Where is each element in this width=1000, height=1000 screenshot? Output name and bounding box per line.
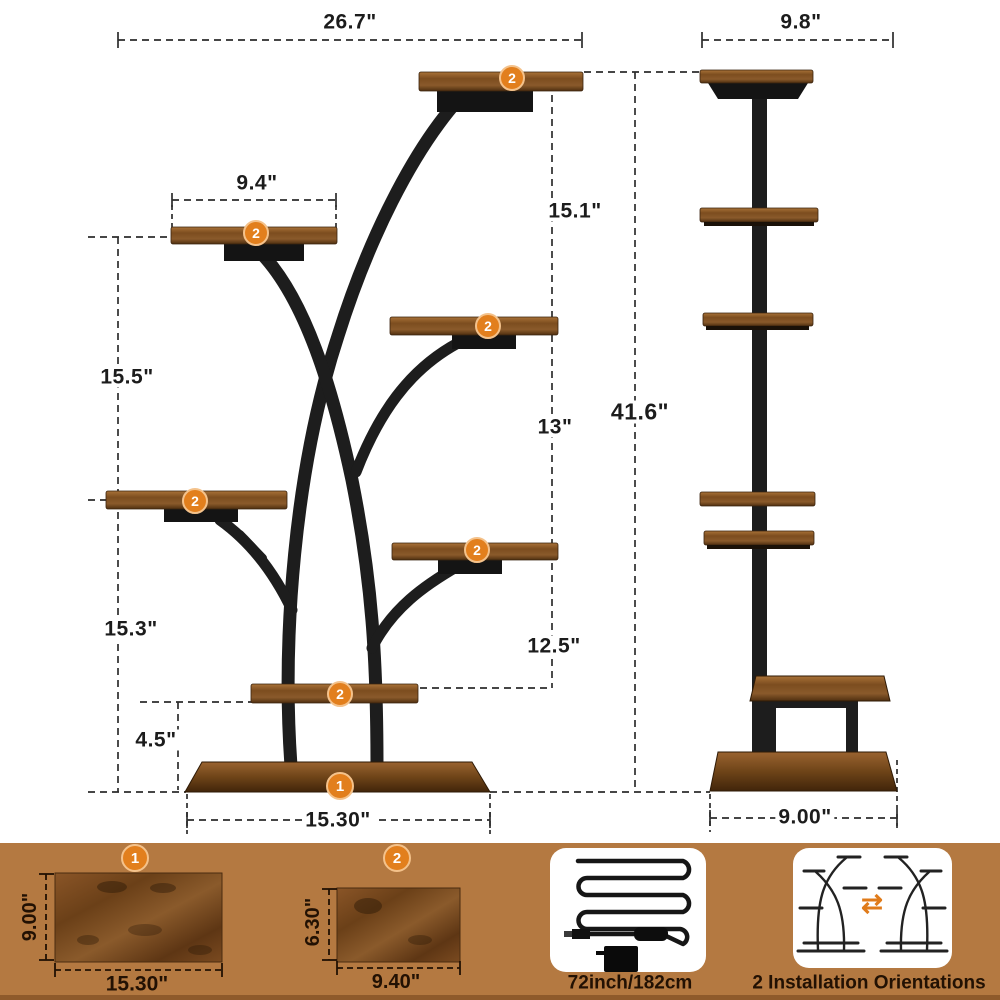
shelf-badge: 2: [327, 681, 353, 707]
legend-board-small-badge: 2: [383, 844, 411, 872]
legend-board-large-height: 9.00": [20, 893, 40, 941]
legend-board-small-graphic: [337, 888, 460, 962]
orientations-label: 2 Installation Orientations: [752, 974, 985, 993]
dim-front-right-upper: 15.1": [545, 201, 604, 222]
dim-front-left-upper: 15.5": [97, 367, 156, 388]
shelf-badge: 2: [499, 65, 525, 91]
legend-board-large-width: 15.30": [106, 974, 169, 995]
dim-front-right-mid: 13": [535, 417, 576, 438]
side-view-dimension-lines: [702, 32, 897, 832]
legend-board-small-width: 9.40": [372, 972, 420, 992]
power-cable-icon: [550, 848, 706, 972]
shelf-badge: 2: [182, 488, 208, 514]
dim-front-right-lower: 12.5": [524, 636, 583, 657]
cable-length-label: 72inch/182cm: [568, 974, 693, 993]
dim-front-left-lower: 15.3": [101, 619, 160, 640]
product-dimension-diagram: 26.7" 9.4" 15.1" 15.5" 13" 41.6" 15.3" 1…: [0, 0, 1000, 1000]
legend-board-large-graphic: [55, 873, 222, 962]
swap-arrows-icon: ⇄: [861, 890, 883, 916]
dim-total-height: 41.6": [608, 401, 672, 424]
diagram-graphics: [0, 0, 1000, 1000]
shelf-badge: 2: [243, 220, 269, 246]
dim-front-base-width: 15.30": [302, 810, 374, 831]
base-badge: 1: [326, 772, 354, 800]
dim-front-base-height: 4.5": [132, 730, 179, 751]
dim-side-base-width: 9.00": [775, 807, 834, 828]
shelf-badge: 2: [464, 537, 490, 563]
dim-side-top-width: 9.8": [777, 12, 824, 33]
legend-board-large-badge: 1: [121, 844, 149, 872]
shelf-badge: 2: [475, 313, 501, 339]
legend-board-small-height: 6.30": [303, 898, 323, 946]
side-stand: [700, 70, 897, 791]
dim-front-top-width: 26.7": [320, 12, 379, 33]
dim-front-shelf-width: 9.4": [233, 173, 280, 194]
